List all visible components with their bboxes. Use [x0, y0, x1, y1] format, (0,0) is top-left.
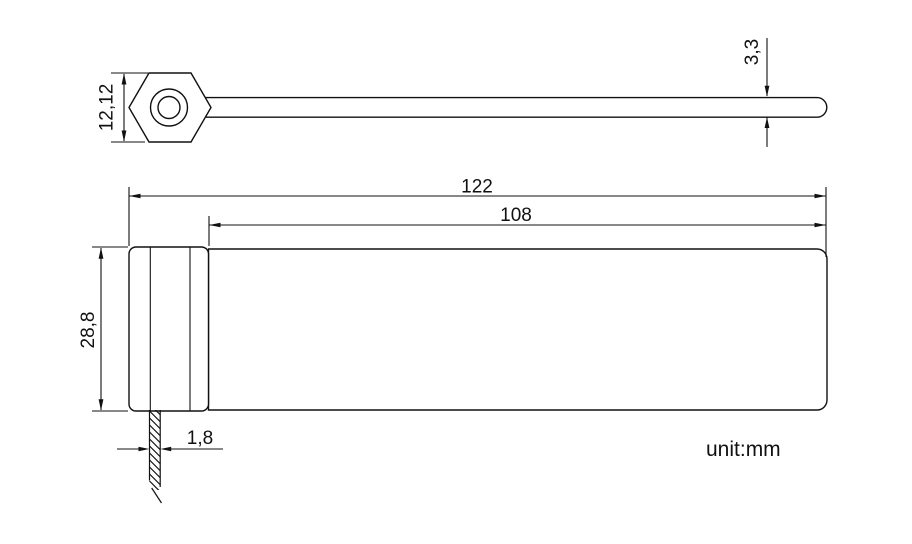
extension-lines: [129, 187, 826, 257]
arrowhead-up: [122, 73, 127, 84]
arrowhead-down: [765, 86, 770, 97]
side-view: 12,12 3,3: [97, 38, 827, 147]
dimension-overall-length: 122: [129, 177, 826, 258]
dimension-strap-tip-thickness: 3,3: [742, 38, 769, 147]
arrowhead-left: [209, 223, 221, 228]
arrowhead-down: [99, 399, 104, 410]
seal-head-plan: [129, 247, 209, 411]
dimension-label-overall-length: 122: [461, 177, 493, 198]
strap-plan-body: [209, 249, 828, 410]
strap-side-profile: [205, 98, 827, 118]
dimension-label-head-width: 28,8: [78, 312, 99, 349]
arrowhead-right: [815, 223, 827, 228]
arrowhead-left: [129, 194, 141, 199]
seal-technical-drawing: 12,12 3,3: [0, 0, 912, 544]
dimension-label-head-height: 12,12: [97, 84, 118, 132]
arrowhead-up: [765, 117, 770, 128]
dimension-label-strap-tip-thickness: 3,3: [742, 39, 763, 65]
drawing-sheet: 12,12 3,3: [0, 0, 912, 544]
hatch-tail-line: [152, 488, 162, 503]
strap-cross-section-hatched: [150, 404, 162, 503]
dimension-strap-cross-section: 1,8: [117, 428, 223, 451]
dimension-strap-length: 108: [209, 205, 826, 246]
arrowhead-right: [815, 194, 827, 199]
arrowhead-right: [139, 447, 150, 452]
unit-label: unit:mm: [706, 438, 781, 461]
seal-head-hexagon: [129, 73, 211, 142]
arrowhead-up: [99, 248, 104, 259]
dimension-label-strap-cross-section: 1,8: [187, 428, 213, 449]
arrowhead-down: [122, 131, 127, 142]
dimension-label-strap-length: 108: [500, 205, 532, 226]
arrowhead-left: [160, 447, 171, 452]
dimension-head-width: 28,8: [78, 247, 128, 411]
hatch-lines: [150, 404, 161, 492]
